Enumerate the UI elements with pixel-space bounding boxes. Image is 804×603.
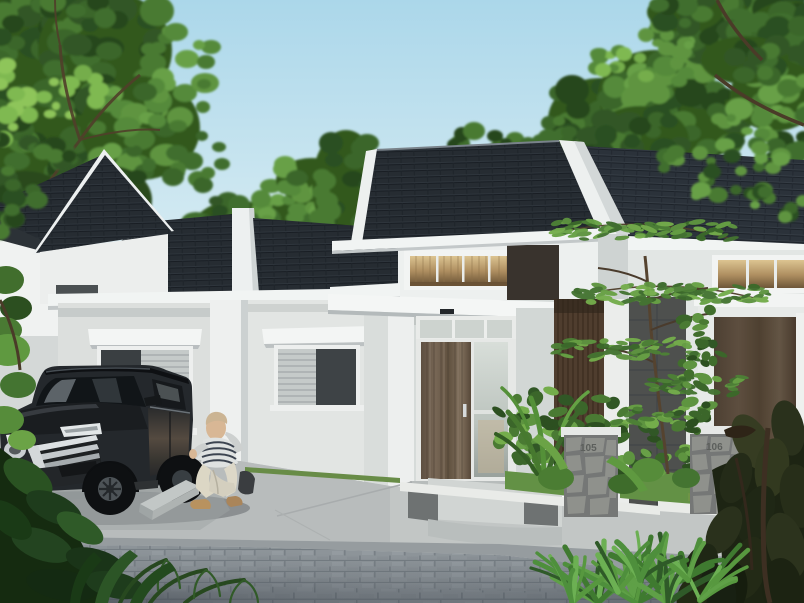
svg-text:106: 106 [706, 442, 723, 453]
svg-text:105: 105 [580, 443, 597, 454]
